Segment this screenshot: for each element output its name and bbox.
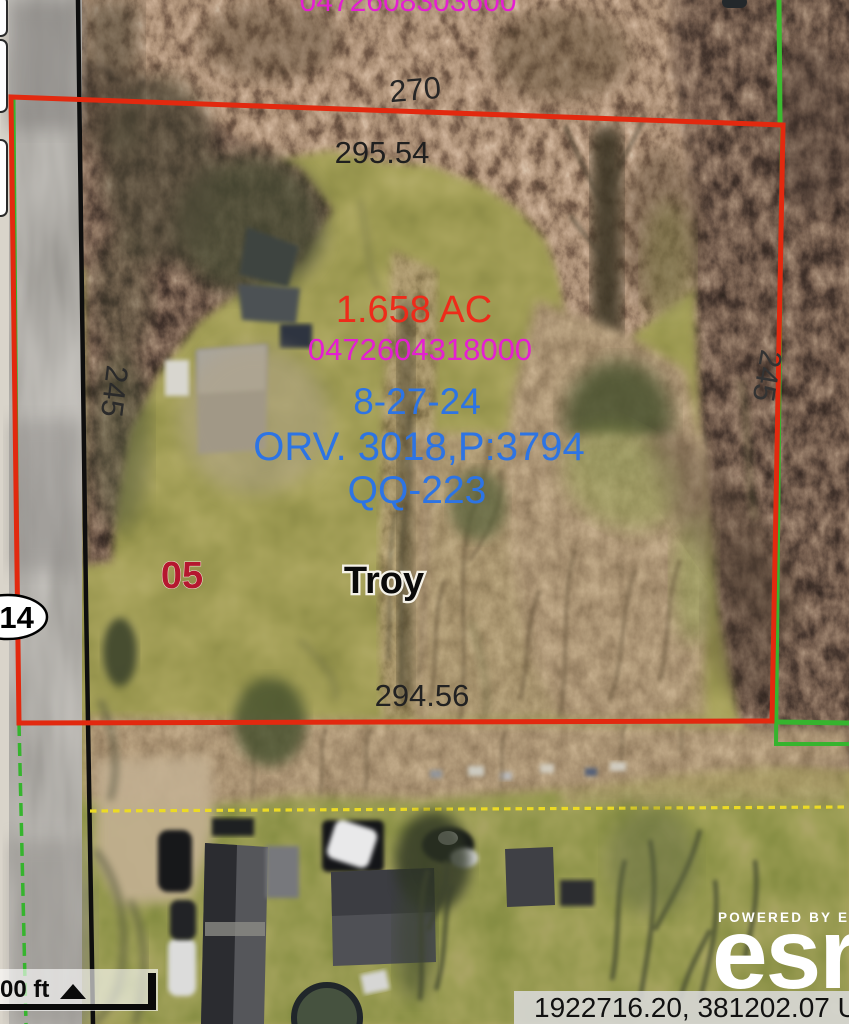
- svg-text:0472608303600: 0472608303600: [300, 0, 517, 18]
- svg-text:1922716.20, 381202.07 U: 1922716.20, 381202.07 U: [534, 992, 849, 1023]
- svg-text:1.658 AC: 1.658 AC: [336, 289, 492, 331]
- svg-text:05: 05: [161, 555, 203, 597]
- svg-text:Troy: Troy: [344, 560, 424, 602]
- svg-text:8-27-24: 8-27-24: [353, 381, 481, 422]
- svg-text:0472604318000: 0472604318000: [308, 332, 532, 367]
- svg-text:QQ-223: QQ-223: [348, 469, 487, 512]
- svg-text:295.54: 295.54: [335, 135, 430, 170]
- svg-text:00 ft: 00 ft: [0, 976, 49, 1003]
- svg-text:294.56: 294.56: [375, 678, 470, 713]
- svg-text:245: 245: [94, 363, 135, 419]
- svg-text:ORV. 3018,P:3794: ORV. 3018,P:3794: [253, 425, 584, 469]
- svg-text:314: 314: [0, 600, 35, 635]
- svg-text:270: 270: [388, 70, 443, 109]
